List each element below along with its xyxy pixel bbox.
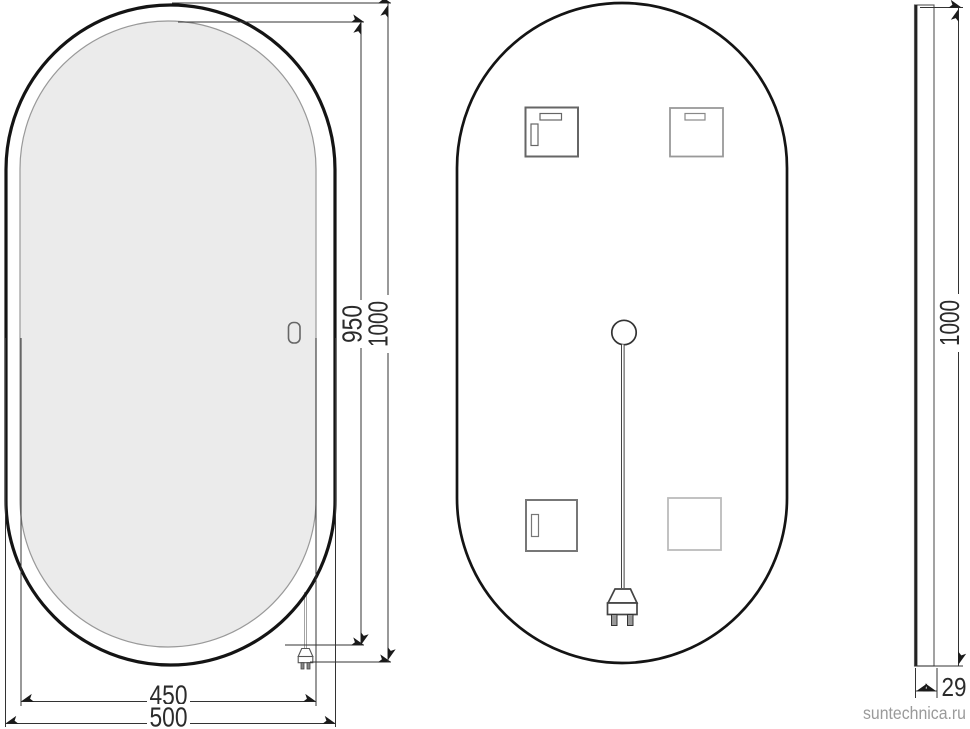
plug-prong-left: [301, 663, 304, 669]
watermark-text: suntechnica.ru: [863, 703, 966, 723]
power-plug-icon-front: [298, 649, 313, 670]
dim-total-width-label: 500: [150, 702, 188, 729]
plug-prong-left: [612, 615, 618, 626]
mirror-technical-drawing: 950 1000 450: [0, 0, 970, 729]
bracket-slot-horizontal: [685, 114, 705, 121]
plug-prong-right: [628, 615, 634, 626]
mounting-bracket-bottom-left: [526, 500, 577, 551]
plug-prong-right: [307, 663, 310, 669]
back-view: [457, 3, 787, 663]
mounting-bracket-top-left: [526, 108, 579, 157]
mounting-bracket-bottom-right: [668, 498, 721, 550]
dimension-thickness: 29: [915, 668, 966, 702]
bracket-slot-vertical: [532, 515, 539, 537]
bracket-slot-vertical: [531, 124, 538, 146]
dim-side-height-label: 1000: [934, 300, 965, 346]
mounting-bracket-top-right: [670, 108, 723, 157]
drawing-canvas: 950 1000 450: [0, 0, 970, 729]
plug-body-top: [298, 649, 313, 657]
plug-body: [608, 603, 638, 615]
dim-total-height-label: 1000: [363, 301, 394, 347]
dim-thickness-label: 29: [942, 672, 967, 702]
bracket-plate: [668, 498, 721, 550]
front-view: [6, 5, 335, 669]
mirror-glass: [20, 21, 316, 647]
side-panel: [915, 5, 935, 666]
cable-outlet: [612, 320, 636, 344]
bracket-slot-horizontal: [540, 114, 562, 121]
side-view: 1000 29: [915, 0, 967, 702]
